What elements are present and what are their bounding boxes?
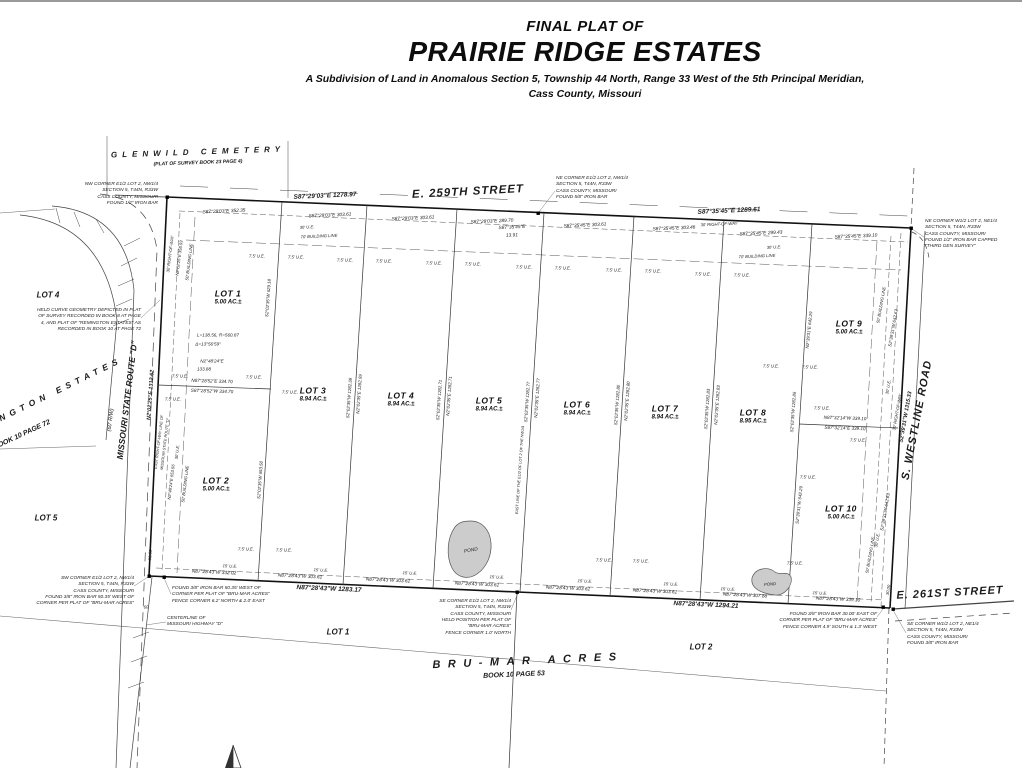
- street-label-e-261st: E. 261ST STREET: [896, 584, 1004, 602]
- lot-label-lot-6: LOT 68.94 AC.±: [564, 400, 591, 417]
- building-line-label: 50' BUILDING LINE: [184, 243, 193, 280]
- bearing-label: N2°02'25"E 1312.62: [146, 370, 156, 421]
- right-of-way-label: 30' RIGHT-OF-WAY: [700, 221, 737, 228]
- bearing-label: S87°29'03"E 1278.97: [293, 191, 356, 201]
- dimension-label: 60: [144, 605, 149, 610]
- easement-label: 7.5' U.E.: [376, 259, 392, 264]
- lot-acreage: 8.94 AC.±: [564, 411, 591, 417]
- bearing-label: S2°02'35"W 1282.86: [789, 392, 797, 433]
- annotation-layer: E. 259TH STREETS. WESTLINE ROADE. 261ST …: [0, 0, 1022, 768]
- easement-label: 15' U.E.: [314, 567, 329, 573]
- corner-note: NE CORNER W1/2 LOT 2, NE1/4SECTION 5, T4…: [925, 219, 997, 251]
- easement-label: 7.5' U.E.: [555, 266, 571, 271]
- easement-label: 7.5' U.E.: [787, 561, 803, 566]
- adjacent-lot-4: LOT 4: [37, 291, 60, 300]
- easement-label: 7.5' U.E.: [814, 406, 830, 411]
- bearing-label: N2°48'24"E 653.56: [166, 464, 175, 500]
- easement-label: 30' U.E.: [174, 444, 181, 459]
- easement-label: 15' U.E.: [578, 578, 593, 584]
- easement-label: 30' U.E.: [767, 244, 782, 250]
- bearing-label: S2°02'35"W 629.18: [264, 279, 272, 317]
- bearing-label: N2°02'35"E 1282.80: [623, 381, 631, 421]
- easement-label: 15' U.E.: [403, 570, 418, 576]
- easement-label: 7.5' U.E.: [282, 390, 298, 395]
- adjacent-lot-1-bru-mar: LOT 1: [327, 628, 350, 637]
- bearing-label: 13.91: [506, 233, 518, 239]
- bearing-label: S87°28'52"W 334.70: [191, 388, 234, 394]
- lot-number: LOT 4: [388, 391, 415, 401]
- easement-label: 7.5' U.E.: [633, 559, 649, 564]
- easement-label: 7.5' U.E.: [288, 255, 304, 260]
- adjacent-area-remington-estates: REMINGTON ESTATES: [0, 355, 124, 442]
- corner-note: SW CORNER E1/2 LOT 2, NW1/4SECTION 5, T4…: [36, 576, 134, 608]
- lot-label-lot-5: LOT 58.94 AC.±: [476, 396, 503, 413]
- building-line-label: 70' BUILDING LINE: [300, 233, 337, 240]
- corner-note: FOUND 3/8" IRON BAR 30.00' EAST OFCORNER…: [779, 612, 877, 631]
- lot-number: LOT 2: [203, 476, 230, 486]
- bearing-label: S2°02'35"W 1282.77: [523, 382, 531, 423]
- lot-label-lot-4: LOT 48.94 AC.±: [388, 391, 415, 408]
- bearing-label: S87°29'03"E 303.61: [391, 216, 434, 223]
- lot-acreage: 5.00 AC.±: [215, 300, 242, 306]
- easement-label: 7.5' U.E.: [165, 397, 181, 402]
- easement-label: 15' U.E.: [813, 590, 828, 596]
- bearing-label: S87°29'03"E 289.70: [470, 219, 513, 226]
- bearing-label: S2°02'35"W 1282.80: [613, 385, 621, 426]
- lot-label-lot-7: LOT 78.94 AC.±: [652, 404, 679, 421]
- easement-label: 15' U.E.: [721, 586, 736, 592]
- bearing-label: N87°28'52"E 334.70: [191, 378, 233, 384]
- pond-label: POND: [464, 547, 479, 554]
- easement-label: 30' U.E.: [300, 224, 315, 230]
- easement-label: 7.5' U.E.: [763, 364, 779, 369]
- curve-data-label: Δ=13°56'59": [195, 342, 220, 347]
- lot-number: LOT 3: [300, 386, 327, 396]
- easement-label: 7.5' U.E.: [249, 254, 265, 259]
- corner-note: NE CORNER E1/2 LOT 2, NW1/4SECTION 5, T4…: [556, 176, 628, 201]
- bearing-label: N87°28'43"W 332.02: [192, 570, 237, 577]
- bearing-label: S87°35'45"E 1289.61: [697, 206, 760, 216]
- bearing-label: N87°32'14"W 339.10: [824, 415, 867, 421]
- cemetery-plat-reference: (PLAT OF SURVEY BOOK 23 PAGE 4): [153, 158, 242, 167]
- easement-label: 7.5' U.E.: [465, 262, 481, 267]
- bearing-label: N87°28'43"W 1294.21: [673, 600, 738, 610]
- bearing-label: N87°28'43"W 303.61: [278, 574, 323, 581]
- lot-acreage: 8.94 AC.±: [652, 415, 679, 421]
- bearing-label: N87°28'43"W 307.88: [723, 593, 768, 600]
- bearing-label: N2°02'35"E 1282.83: [713, 385, 721, 425]
- bearing-label: S87°32'14"E 339.10: [824, 425, 865, 431]
- adjacent-area-bru-mar-acres: BRU-MAR ACRES: [432, 651, 624, 671]
- lot-acreage: 8.95 AC.±: [740, 419, 767, 425]
- easement-label: 15' U.E.: [664, 581, 679, 587]
- lot-number: LOT 6: [564, 400, 591, 410]
- corner-note: SE CORNER W1/2 LOT 2, NE1/4SECTION 5, T4…: [907, 622, 979, 647]
- bearing-label: N2°48'24"E: [200, 359, 224, 364]
- plat-subtitle-line2: Cass County, Missouri: [300, 87, 870, 102]
- lot-number: LOT 8: [740, 408, 767, 418]
- easement-label: 7.5' U.E.: [695, 272, 711, 277]
- remington-book-reference: BOOK 10 PAGE 72: [0, 419, 51, 451]
- lot-acreage: 8.94 AC.±: [476, 407, 503, 413]
- curve-data-label: L=138.56, R=560.87: [197, 333, 239, 338]
- title-block: FINAL PLAT OF PRAIRIE RIDGE ESTATES A Su…: [300, 18, 870, 102]
- plat-title: PRAIRIE RIDGE ESTATES: [300, 36, 870, 68]
- bearing-label: N87°28'43"W 339.10: [816, 597, 861, 604]
- bearing-label: S87°29'03"E 303.61: [308, 213, 351, 220]
- adjacent-area-glenwild-cemetery: GLENWILD CEMETERY: [111, 144, 285, 159]
- easement-label: 7.5' U.E.: [596, 558, 612, 563]
- lot-label-lot-9: LOT 95.00 AC.±: [836, 319, 863, 336]
- plat-pretitle: FINAL PLAT OF: [300, 18, 870, 35]
- bearing-label: N87°28'43"W 303.61: [633, 589, 678, 596]
- lot-label-lot-1: LOT 15.00 AC.±: [215, 289, 242, 306]
- pond-label: POND: [764, 581, 776, 587]
- easement-label: 7.5' U.E.: [238, 547, 254, 552]
- bearing-label: N87°28'43"W 303.61: [546, 586, 591, 593]
- bearing-label: N2°02'35"E 1282.69: [355, 374, 363, 414]
- easement-label: 7.5' U.E.: [850, 438, 866, 443]
- bearing-label: S87°35'45"E 339.10: [834, 234, 877, 241]
- bearing-label: S2°39'31"W 642.63: [887, 309, 899, 347]
- easement-label: 7.5' U.E.: [516, 265, 532, 270]
- building-line-label: 70' BUILDING LINE: [738, 253, 775, 260]
- easement-label: 15' U.E.: [223, 563, 238, 569]
- bearing-label: N2°39'31"E 642.29: [805, 311, 814, 348]
- bearing-label: N87°28'43"W 303.61: [455, 582, 500, 589]
- lot-label-lot-3: LOT 38.94 AC.±: [300, 386, 327, 403]
- bearing-label: S2°02'35"W 1282.83: [703, 389, 711, 430]
- bearing-label: N87°28'43"W 303.61: [366, 578, 411, 585]
- easement-label: 7.5' U.E.: [246, 375, 262, 380]
- bearing-label: N87°28'43"W 1283.17: [296, 584, 361, 594]
- corner-note: HELD CURVE GEOMETRY DEPICTED IN PLATOF S…: [37, 308, 141, 333]
- lot-label-lot-10: LOT 105.00 AC.±: [825, 504, 857, 521]
- bearing-label: S87°29'03"E 352.35: [202, 209, 245, 216]
- bru-mar-book-reference: BOOK 10 PAGE 53: [483, 670, 545, 680]
- easement-label: 7.5' U.E.: [645, 269, 661, 274]
- easement-label: 7.5' U.E.: [800, 475, 816, 480]
- lot-number: LOT 1: [215, 289, 242, 299]
- adjacent-lot-5: LOT 5: [35, 514, 58, 523]
- lot-acreage: 5.00 AC.±: [203, 487, 230, 493]
- adjacent-lot-2-bru-mar: LOT 2: [690, 643, 713, 652]
- bearing-label: S87°35'45"E 299.43: [739, 231, 782, 238]
- bearing-label: N2°02'35"E 1282.71: [445, 376, 453, 416]
- corner-note: SE CORNER E1/2 LOT 2, NW1/4SECTION 5, T4…: [439, 599, 511, 637]
- building-line-label: 50' BUILDING LINE: [864, 536, 875, 573]
- corner-note: FOUND 3/8" IRON BAR 50.35' WEST OFCORNER…: [172, 586, 270, 605]
- lot-acreage: 8.94 AC.±: [300, 397, 327, 403]
- bearing-label: S2°39'31"W 642.63: [879, 493, 891, 531]
- easement-label: 7.5' U.E.: [802, 365, 818, 370]
- lot-number: LOT 10: [825, 504, 857, 514]
- easement-label: 7.5' U.E.: [426, 261, 442, 266]
- bearing-label: S87°35'45"E 303.61: [563, 223, 606, 230]
- lot-label-lot-8: LOT 88.95 AC.±: [740, 408, 767, 425]
- bearing-label: S2°39'31"W 642.29: [795, 486, 804, 524]
- easement-label: 7.5' U.E.: [172, 374, 188, 379]
- lot-number: LOT 9: [836, 319, 863, 329]
- bearing-label: S2°02'35"W 653.50: [256, 461, 264, 499]
- easement-label: 7.5' U.E.: [606, 268, 622, 273]
- building-line-label: 50' BUILDING LINE: [180, 465, 189, 502]
- corner-note: CENTERLINE OFMISSOURI HIGHWAY "D": [167, 616, 223, 629]
- bearing-label: S2°02'35"W 1282.71: [435, 380, 443, 421]
- bearing-label: S87°35'45"E 303.46: [652, 226, 695, 233]
- bearing-label: S87°35'45"E: [498, 225, 525, 231]
- easement-label: 30' U.E.: [884, 379, 891, 394]
- line-description-label: EAST LINE OF THE E1/2 OF LOT 2 OF THE NW…: [515, 426, 525, 515]
- easement-label: 7.5' U.E.: [734, 273, 750, 278]
- lot-acreage: 8.94 AC.±: [388, 402, 415, 408]
- lot-number: LOT 7: [652, 404, 679, 414]
- lot-label-lot-2: LOT 25.00 AC.±: [203, 476, 230, 493]
- building-line-label: 50' BUILDING LINE: [875, 286, 886, 323]
- right-of-way-label: 30' RIGHT-OF-WAY: [165, 235, 174, 272]
- bearing-label: 133.88: [197, 367, 211, 372]
- plat-page: { "title_block": { "pretitle": "FINAL PL…: [0, 0, 1022, 768]
- lot-number: LOT 5: [476, 396, 503, 406]
- bearing-label: N2°02'25"E 358.93: [174, 240, 183, 276]
- bearing-label: S2°02'35"W 1282.69: [345, 378, 353, 419]
- dimension-label: 30.00: [885, 584, 892, 595]
- easement-label: 15' U.E.: [490, 574, 505, 580]
- lot-acreage: 5.00 AC.±: [836, 330, 863, 336]
- corner-note: NW CORNER E1/2 LOT 2, NW1/4SECTION 5, T4…: [85, 182, 158, 207]
- plat-subtitle-line1: A Subdivision of Land in Anomalous Secti…: [300, 72, 870, 87]
- bearing-label: N2°02'35"E 1282.77: [533, 378, 541, 418]
- route-d-row-width: (60' R/W): [107, 408, 116, 432]
- street-label-e-259th: E. 259TH STREET: [412, 183, 525, 201]
- dimension-label: 50.35: [147, 550, 153, 561]
- lot-acreage: 5.00 AC.±: [825, 515, 857, 521]
- easement-label: 7.5' U.E.: [337, 258, 353, 263]
- easement-label: 7.5' U.E.: [276, 548, 292, 553]
